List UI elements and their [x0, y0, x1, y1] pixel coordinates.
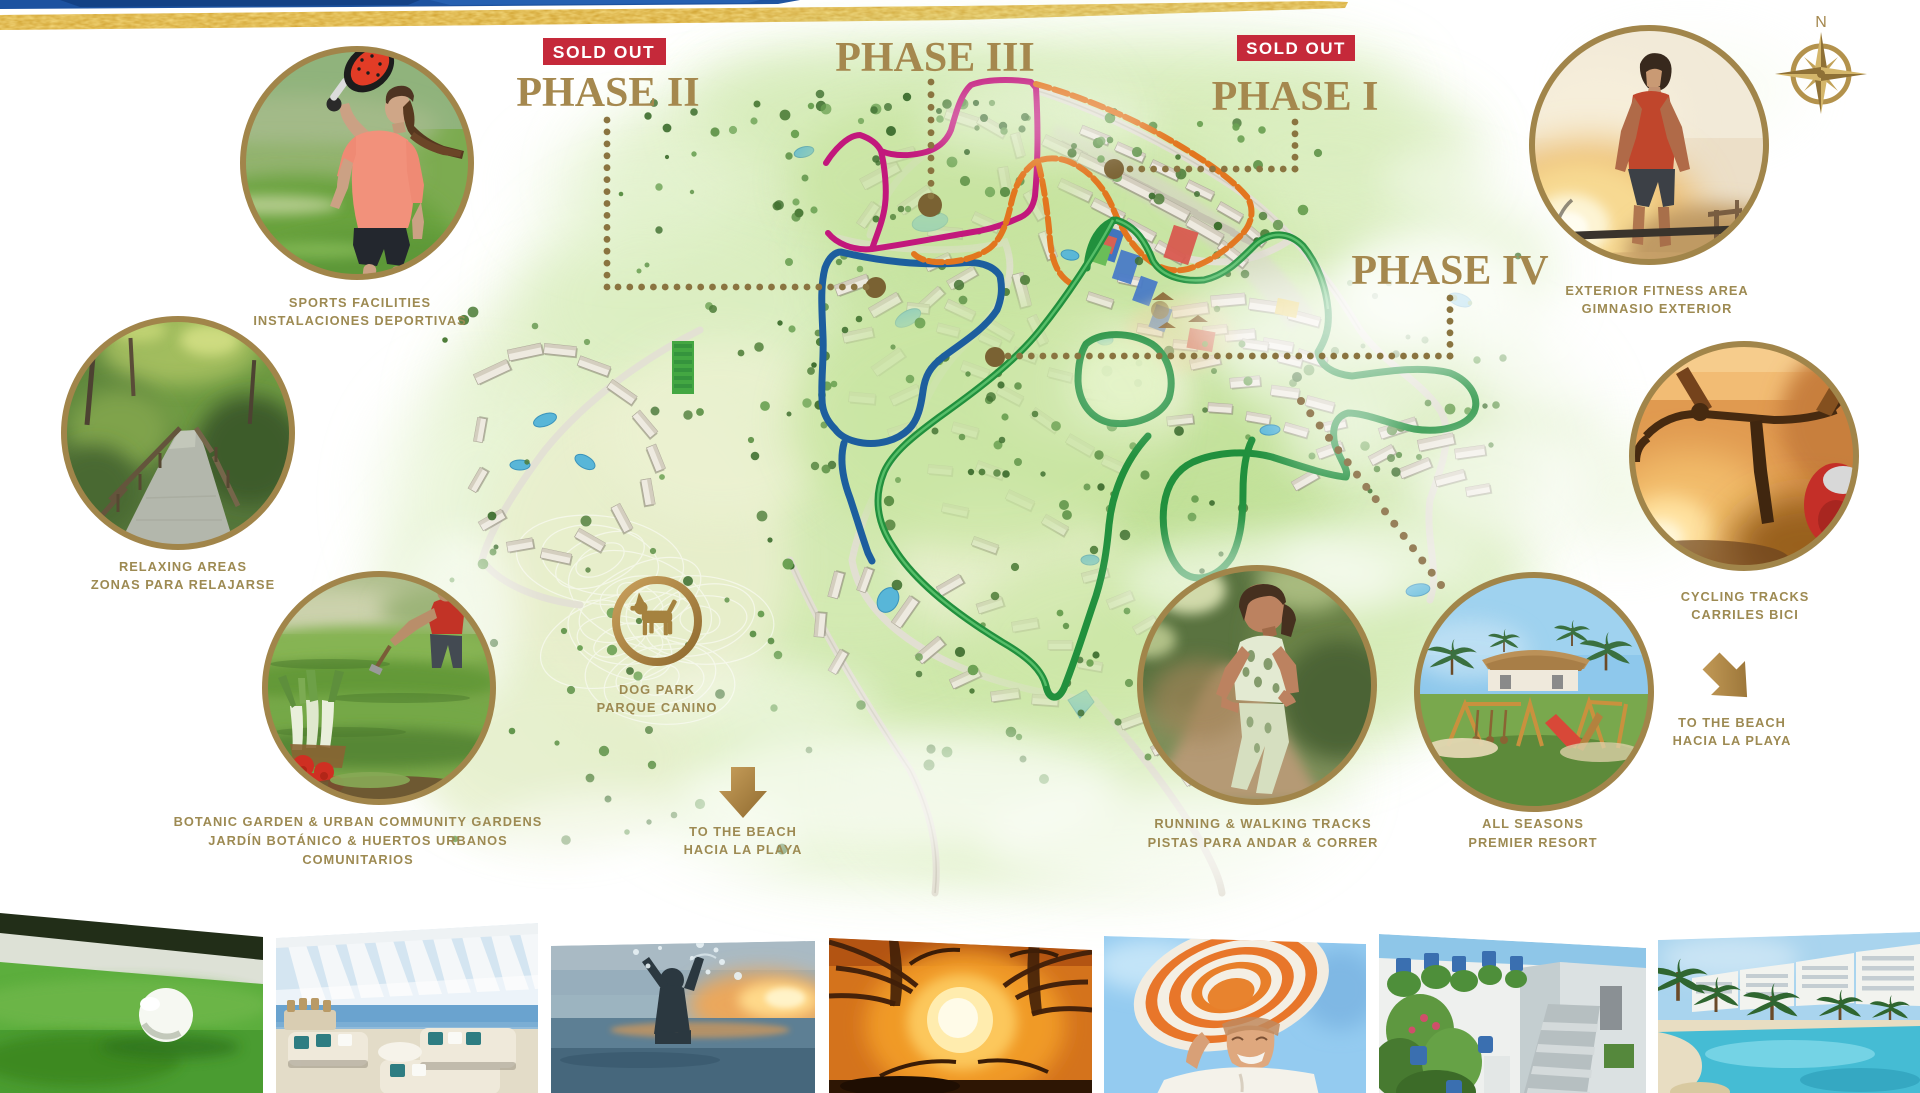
svg-text:ZONAS PARA RELAJARSE: ZONAS PARA RELAJARSE	[91, 577, 275, 592]
svg-text:N: N	[1815, 14, 1827, 31]
svg-text:DOG PARK: DOG PARK	[619, 682, 695, 697]
svg-text:HACIA LA PLAYA: HACIA LA PLAYA	[684, 842, 803, 857]
svg-text:CARRILES BICI: CARRILES BICI	[1691, 607, 1799, 622]
svg-text:PHASE I: PHASE I	[1212, 74, 1379, 120]
svg-text:PISTAS PARA ANDAR & CORRER: PISTAS PARA ANDAR & CORRER	[1148, 835, 1379, 850]
svg-text:RUNNING & WALKING TRACKS: RUNNING & WALKING TRACKS	[1154, 816, 1371, 831]
svg-text:CYCLING TRACKS: CYCLING TRACKS	[1681, 589, 1809, 604]
svg-text:PHASE III: PHASE III	[835, 35, 1035, 81]
svg-text:BOTANIC GARDEN & URBAN COMMUNI: BOTANIC GARDEN & URBAN COMMUNITY GARDENS	[174, 814, 543, 829]
svg-text:PARQUE CANINO: PARQUE CANINO	[597, 700, 718, 715]
svg-text:JARDÍN BOTÁNICO & HUERTOS URBA: JARDÍN BOTÁNICO & HUERTOS URBANOS	[208, 833, 507, 848]
svg-text:SOLD OUT: SOLD OUT	[1246, 39, 1346, 58]
svg-text:HACIA LA PLAYA: HACIA LA PLAYA	[1673, 733, 1792, 748]
svg-text:PHASE IV: PHASE IV	[1351, 248, 1548, 294]
svg-text:TO THE BEACH: TO THE BEACH	[1678, 715, 1786, 730]
svg-text:PREMIER RESORT: PREMIER RESORT	[1468, 835, 1597, 850]
svg-text:PHASE II: PHASE II	[516, 70, 699, 116]
svg-text:INSTALACIONES DEPORTIVAS: INSTALACIONES DEPORTIVAS	[253, 313, 466, 328]
svg-text:SOLD OUT: SOLD OUT	[553, 42, 655, 62]
svg-text:SPORTS FACILITIES: SPORTS FACILITIES	[289, 295, 431, 310]
svg-text:TO THE BEACH: TO THE BEACH	[689, 824, 797, 839]
svg-text:GIMNASIO EXTERIOR: GIMNASIO EXTERIOR	[1582, 301, 1733, 316]
svg-text:COMUNITARIOS: COMUNITARIOS	[302, 852, 413, 867]
svg-text:RELAXING AREAS: RELAXING AREAS	[119, 559, 247, 574]
svg-text:EXTERIOR FITNESS AREA: EXTERIOR FITNESS AREA	[1565, 283, 1748, 298]
svg-text:ALL SEASONS: ALL SEASONS	[1482, 816, 1584, 831]
